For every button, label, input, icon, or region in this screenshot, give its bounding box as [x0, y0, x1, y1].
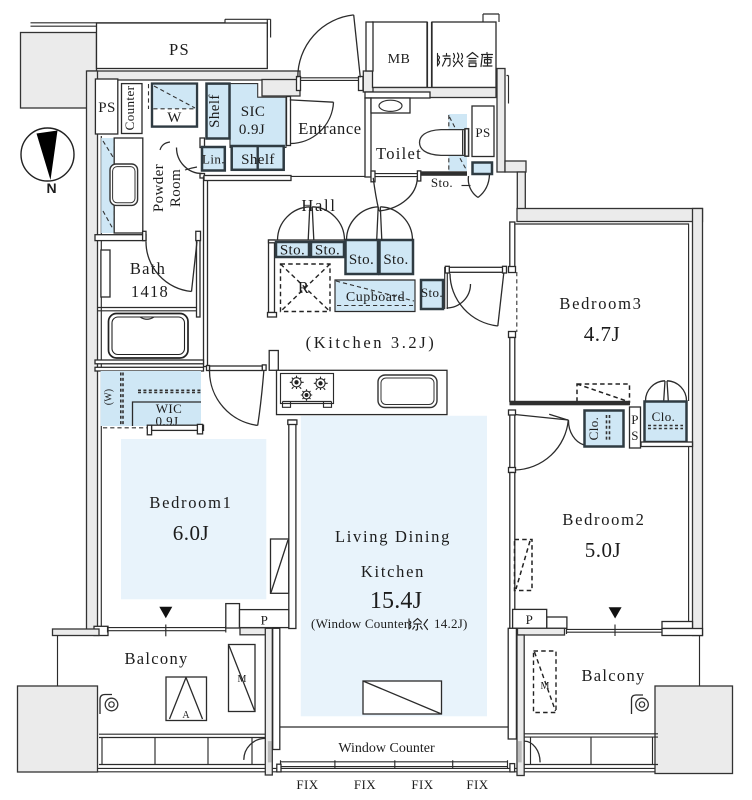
svg-text:N: N [46, 180, 56, 196]
svg-text:Hall: Hall [301, 196, 336, 215]
svg-text:W: W [167, 110, 182, 126]
svg-text:Shelf: Shelf [207, 94, 223, 128]
svg-text:Bath: Bath [130, 259, 166, 278]
svg-text:Clo.: Clo. [652, 409, 676, 424]
svg-text:Sto.: Sto. [431, 175, 453, 190]
svg-text:PS: PS [169, 40, 190, 59]
svg-text:14.2J): 14.2J) [434, 616, 468, 631]
svg-text:Sto.: Sto. [383, 252, 408, 268]
svg-text:Sto.: Sto. [421, 285, 443, 300]
svg-text:Shelf: Shelf [241, 152, 275, 168]
svg-text:A: A [182, 710, 190, 721]
svg-text:Sto.: Sto. [349, 252, 374, 268]
svg-text:Toilet: Toilet [376, 144, 422, 163]
svg-text:FIX: FIX [466, 777, 488, 792]
svg-text:Lin.: Lin. [202, 152, 225, 167]
svg-text:S: S [631, 428, 638, 443]
svg-text:(Kitchen 3.2J): (Kitchen 3.2J) [306, 333, 437, 352]
svg-text:(W): (W) [104, 389, 115, 405]
svg-text:P: P [631, 412, 638, 427]
svg-text:PS: PS [475, 125, 490, 140]
svg-text:Balcony: Balcony [124, 649, 188, 668]
svg-text:(Window Counter: (Window Counter [311, 616, 409, 631]
svg-text:Powder: Powder [151, 164, 167, 212]
svg-text:Cupboard: Cupboard [346, 290, 405, 305]
svg-text:FIX: FIX [354, 777, 376, 792]
svg-text:FIX: FIX [411, 777, 433, 792]
svg-text:Window Counter: Window Counter [338, 741, 435, 756]
svg-text:Entrance: Entrance [298, 119, 361, 138]
svg-text:0.9J: 0.9J [239, 122, 265, 138]
svg-text:P: P [261, 613, 269, 628]
svg-text:M: M [541, 681, 550, 692]
svg-text:Sto.: Sto. [315, 243, 340, 259]
svg-text:Kitchen: Kitchen [361, 562, 425, 581]
svg-text:R: R [298, 278, 310, 297]
svg-text:PS: PS [98, 100, 116, 116]
svg-text:5.0J: 5.0J [585, 538, 621, 562]
svg-text:Counter: Counter [122, 85, 137, 130]
svg-text:Sto.: Sto. [280, 243, 305, 259]
svg-text:1418: 1418 [131, 282, 169, 301]
svg-text:SIC: SIC [241, 104, 266, 120]
svg-text:M: M [238, 674, 247, 685]
svg-text:Bedroom2: Bedroom2 [562, 510, 645, 529]
svg-text:Balcony: Balcony [581, 666, 645, 685]
svg-text:FIX: FIX [296, 777, 318, 792]
svg-text:6.0J: 6.0J [173, 521, 209, 545]
svg-text:Bedroom1: Bedroom1 [149, 493, 232, 512]
svg-text:15.4J: 15.4J [370, 588, 422, 614]
svg-text:Clo.: Clo. [586, 417, 601, 441]
svg-text:MB: MB [388, 52, 411, 67]
svg-text:P: P [526, 612, 534, 627]
svg-text:Room: Room [168, 169, 184, 207]
svg-text:Bedroom3: Bedroom3 [559, 294, 642, 313]
svg-text:4.7J: 4.7J [584, 322, 620, 346]
svg-text:Living Dining: Living Dining [335, 527, 451, 546]
